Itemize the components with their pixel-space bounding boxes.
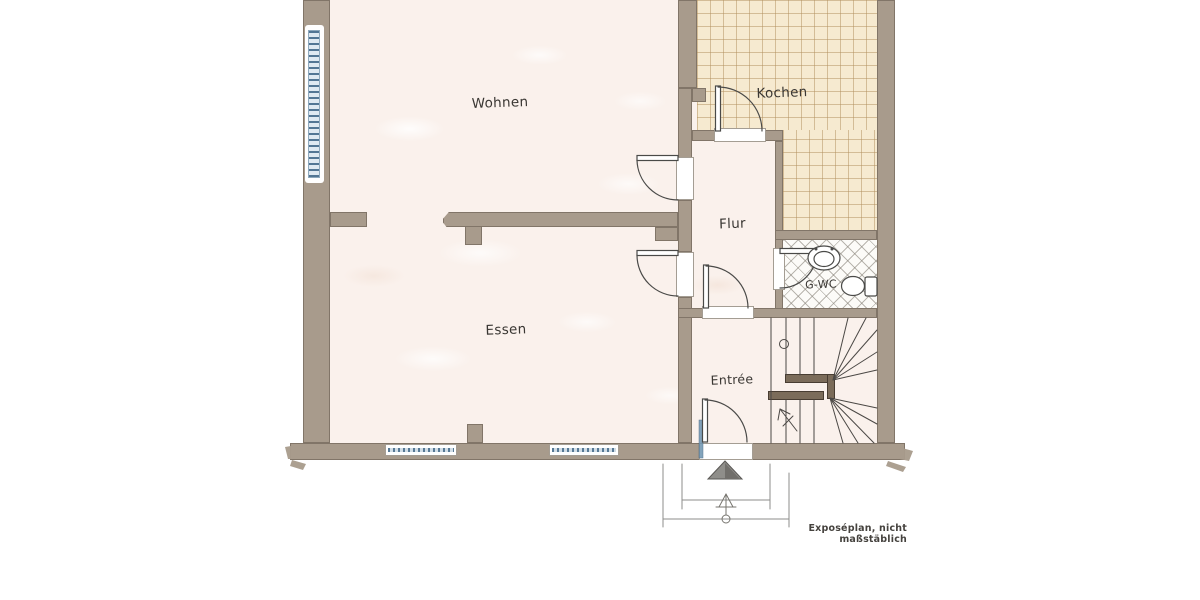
pillar-essen: [467, 424, 483, 443]
wall-wohnen-essen-stub: [330, 212, 367, 227]
pillar-divider: [465, 226, 482, 245]
floor-kitchen-tiles-upper: [697, 0, 877, 131]
wall-kitchen-door-jamb: [692, 88, 706, 102]
room-label-wohnen: Wohnen: [455, 93, 546, 112]
floor-kitchen-tiles-lower: [783, 130, 877, 231]
room-label-gwc: G-WC: [786, 277, 856, 292]
door-gap-kochen: [714, 128, 766, 142]
room-label-entree: Entrée: [694, 371, 770, 389]
pillar-flur-corner: [655, 227, 678, 241]
window-bottom-2: [549, 444, 619, 456]
room-label-essen: Essen: [461, 320, 552, 339]
wall-wohnen-essen-main: [443, 212, 678, 227]
benchmark-icon: [716, 494, 736, 523]
door-gap-flur-entree: [702, 306, 754, 319]
door-gap-gwc: [773, 248, 785, 290]
floor-gwc-tiles: [783, 240, 877, 310]
dimension-lines: [663, 464, 789, 527]
wall-flur-left-mid: [678, 200, 692, 252]
wall-kitchen-left-upper: [678, 0, 697, 88]
door-gap-front: [699, 443, 753, 460]
room-label-flur: Flur: [695, 215, 771, 234]
window-left: [308, 30, 320, 178]
room-label-kochen: Kochen: [737, 83, 828, 102]
stair-wall-lower: [768, 391, 824, 400]
plan-caption: Exposéplan, nicht maßstäblich: [757, 523, 907, 545]
window-bottom-1: [385, 444, 457, 456]
door-gap-wohnen: [676, 157, 694, 200]
wall-kitchen-gwc: [775, 230, 877, 240]
wall-flur-left-upper: [678, 88, 692, 158]
entrance-triangle-icon: [708, 461, 742, 479]
wall-entree-left: [678, 297, 692, 443]
stair-wall-connector: [827, 374, 835, 399]
door-gap-essen: [676, 252, 694, 297]
floorplan-canvas: Wohnen Essen Kochen Flur G-WC Entrée Exp…: [0, 0, 1200, 600]
wall-right-exterior: [877, 0, 895, 443]
